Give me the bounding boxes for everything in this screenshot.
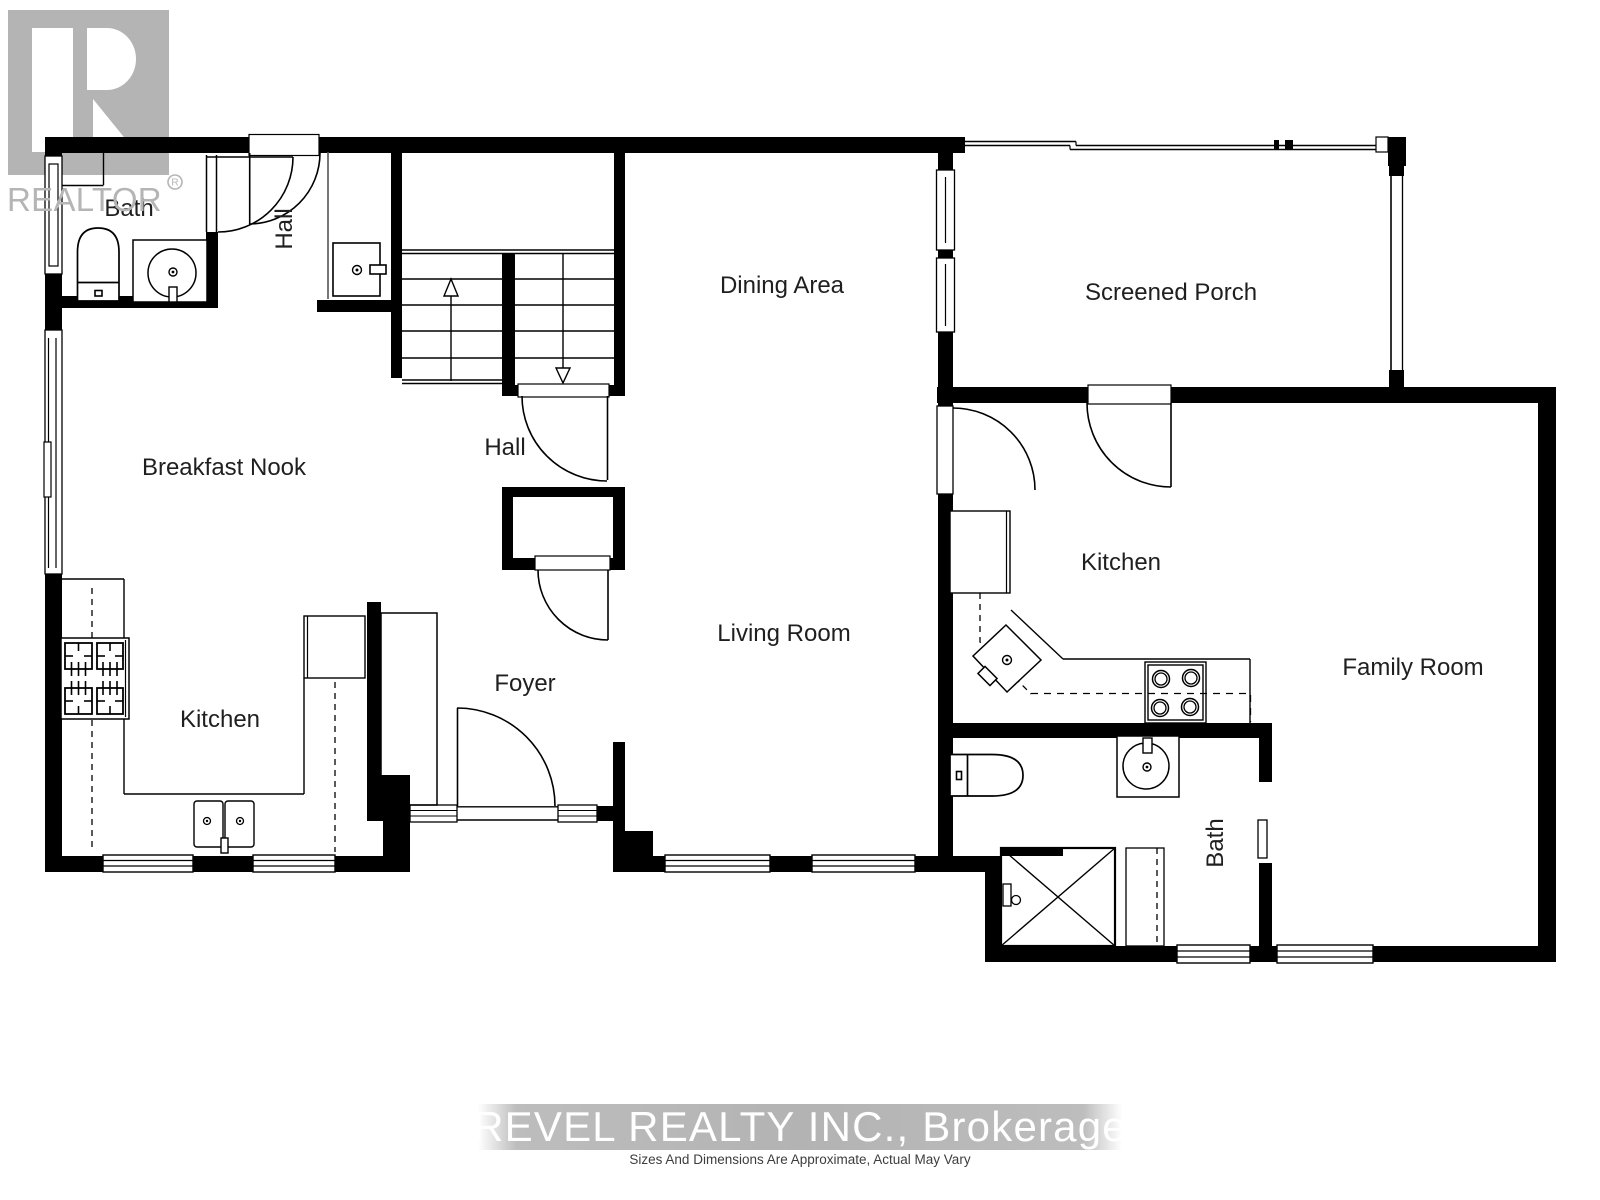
svg-text:Sizes And Dimensions Are Appro: Sizes And Dimensions Are Approximate, Ac… [629,1152,970,1167]
svg-text:Living Room: Living Room [717,620,850,647]
svg-text:Hall: Hall [484,434,525,461]
svg-text:Dining Area: Dining Area [720,272,845,299]
svg-text:Screened Porch: Screened Porch [1085,279,1257,306]
svg-text:Kitchen: Kitchen [1081,549,1161,576]
svg-text:REVEL REALTY INC., Brokerage: REVEL REALTY INC., Brokerage [473,1103,1127,1150]
svg-text:Bath: Bath [1202,818,1229,867]
svg-text:REALTOR: REALTOR [7,181,162,218]
svg-text:Kitchen: Kitchen [180,706,260,733]
svg-text:Hall: Hall [271,208,298,249]
svg-text:Foyer: Foyer [494,670,555,697]
svg-text:Family Room: Family Room [1342,654,1483,681]
svg-text:Breakfast Nook: Breakfast Nook [142,454,307,481]
svg-text:R: R [171,178,178,189]
